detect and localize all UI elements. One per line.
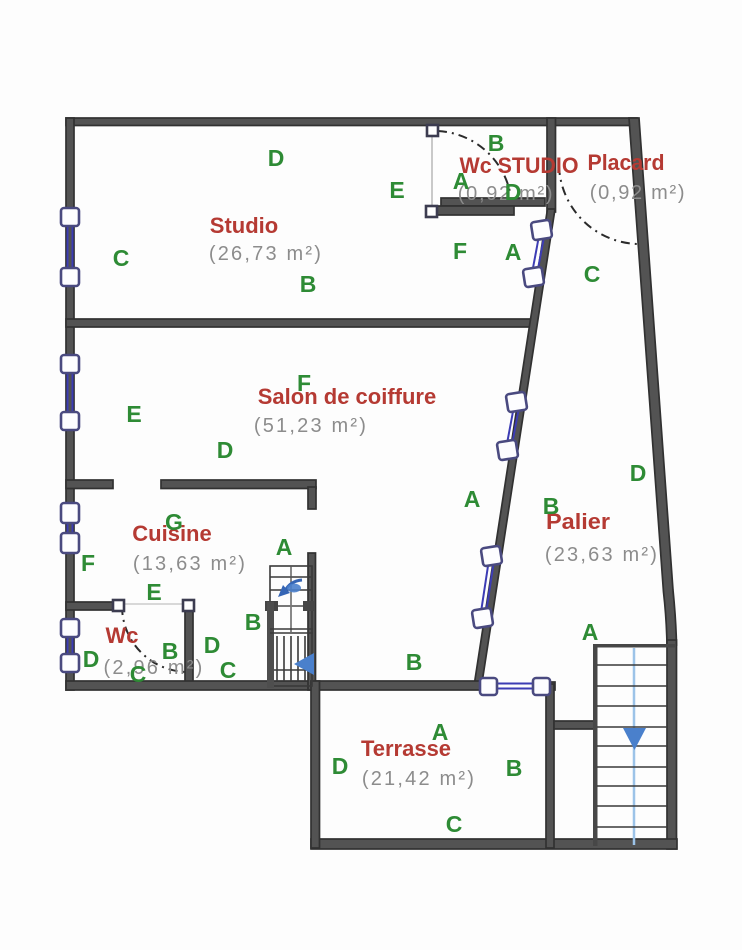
svg-text:B: B bbox=[506, 755, 523, 781]
svg-text:B: B bbox=[406, 649, 423, 675]
svg-text:C: C bbox=[113, 245, 130, 271]
svg-text:A: A bbox=[582, 619, 599, 645]
svg-text:B: B bbox=[162, 638, 179, 664]
svg-text:(26,73 m²): (26,73 m²) bbox=[209, 243, 323, 265]
svg-text:C: C bbox=[220, 657, 237, 683]
svg-text:C: C bbox=[584, 261, 601, 287]
svg-text:F: F bbox=[81, 550, 95, 576]
svg-text:E: E bbox=[146, 579, 161, 605]
svg-text:D: D bbox=[505, 179, 522, 205]
svg-text:C: C bbox=[130, 661, 147, 687]
svg-text:D: D bbox=[332, 753, 349, 779]
svg-text:(13,63 m²): (13,63 m²) bbox=[133, 553, 247, 575]
svg-text:E: E bbox=[389, 177, 404, 203]
svg-text:D: D bbox=[83, 646, 100, 672]
svg-text:D: D bbox=[204, 632, 221, 658]
svg-text:Wc: Wc bbox=[106, 623, 139, 648]
svg-text:(0,92 m²): (0,92 m²) bbox=[590, 182, 686, 204]
svg-text:A: A bbox=[432, 719, 449, 745]
svg-text:(51,23 m²): (51,23 m²) bbox=[254, 415, 368, 437]
svg-text:G: G bbox=[165, 509, 183, 535]
svg-text:(23,63 m²): (23,63 m²) bbox=[545, 544, 659, 566]
svg-text:B: B bbox=[488, 130, 505, 156]
svg-text:E: E bbox=[126, 401, 141, 427]
svg-text:(2,96 m²): (2,96 m²) bbox=[104, 657, 205, 679]
svg-text:A: A bbox=[464, 486, 481, 512]
svg-text:B: B bbox=[300, 271, 317, 297]
svg-text:F: F bbox=[297, 370, 311, 396]
svg-text:D: D bbox=[630, 460, 647, 486]
svg-text:A: A bbox=[453, 168, 470, 194]
svg-text:Studio: Studio bbox=[210, 213, 278, 238]
svg-text:F: F bbox=[453, 238, 467, 264]
svg-text:B: B bbox=[245, 609, 262, 635]
svg-text:D: D bbox=[268, 145, 285, 171]
svg-text:(21,42 m²): (21,42 m²) bbox=[362, 768, 476, 790]
svg-text:B: B bbox=[543, 493, 560, 519]
svg-text:A: A bbox=[505, 239, 522, 265]
svg-text:Placard: Placard bbox=[588, 150, 665, 175]
svg-text:D: D bbox=[217, 437, 234, 463]
svg-text:C: C bbox=[446, 811, 463, 837]
svg-text:Wc STUDIO: Wc STUDIO bbox=[460, 153, 579, 178]
svg-text:A: A bbox=[276, 534, 293, 560]
svg-text:Salon de coiffure: Salon de coiffure bbox=[258, 384, 436, 409]
